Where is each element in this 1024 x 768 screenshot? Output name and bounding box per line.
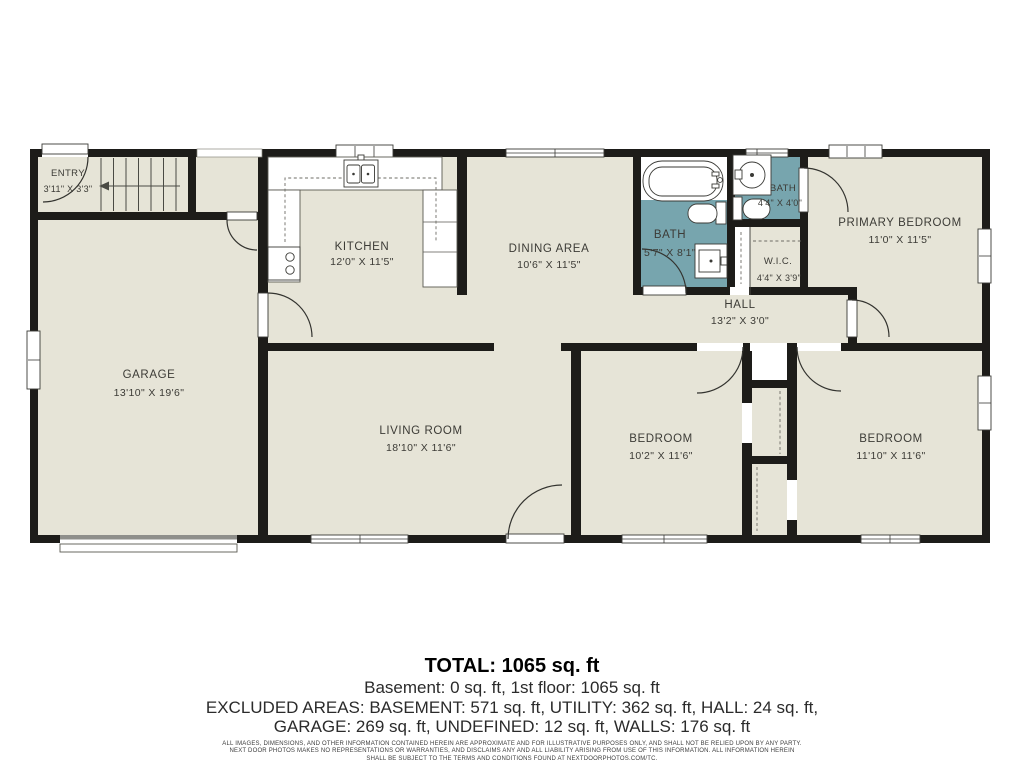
room-dims-bath-ensuite: 4'4" X 4'0" bbox=[758, 198, 802, 208]
room-dims-hall: 13'2" X 3'0" bbox=[711, 315, 769, 327]
room-dims-dining: 10'6" X 11'5" bbox=[517, 259, 581, 271]
floors-area-line: Basement: 0 sq. ft, 1st floor: 1065 sq. … bbox=[0, 678, 1024, 698]
room-label-bath-main: BATH bbox=[654, 229, 686, 241]
room-label-living: LIVING ROOM bbox=[379, 425, 462, 437]
room-dims-bath-main: 5'7" X 8'1" bbox=[644, 247, 696, 259]
room-label-bedroom-right: BEDROOM bbox=[859, 433, 923, 445]
room-dims-entry: 3'11" X 3'3" bbox=[44, 184, 93, 194]
disclaimer: ALL IMAGES, DIMENSIONS, AND OTHER INFORM… bbox=[0, 741, 1024, 764]
hall-vestibule-opening bbox=[750, 343, 787, 351]
disclaimer-line-2: NEXT DOOR PHOTOS MAKES NO REPRESENTATION… bbox=[0, 748, 1024, 756]
ensuite-faucet bbox=[735, 170, 742, 179]
room-label-bedroom-left: BEDROOM bbox=[629, 433, 693, 445]
bedroom-left-door-gap bbox=[697, 343, 743, 351]
closet-vestibule-floor bbox=[752, 351, 787, 381]
ensuite-toilet-tank bbox=[733, 197, 742, 220]
room-dims-living: 18'10" X 11'6" bbox=[386, 442, 456, 454]
garage-kitchen-door-leaf bbox=[258, 293, 268, 337]
closet-right-door-gap bbox=[787, 480, 797, 520]
room-label-entry: ENTRY bbox=[51, 168, 85, 179]
room-dims-bedroom-right: 11'10" X 11'6" bbox=[856, 450, 925, 462]
room-label-bath-ensuite: BATH bbox=[770, 183, 796, 194]
tub-faucet bbox=[718, 178, 723, 183]
room-label-garage: GARAGE bbox=[123, 369, 176, 381]
excluded-areas-line-2: GARAGE: 269 sq. ft, UNDEFINED: 12 sq. ft… bbox=[0, 717, 1024, 737]
toilet-tank bbox=[716, 202, 726, 224]
floor-plan-drawing: ENTRY 3'11" X 3'3" KITCHEN 12'0" X 11'5"… bbox=[0, 0, 1024, 620]
toilet bbox=[688, 204, 717, 223]
area-summary: TOTAL: 1065 sq. ft Basement: 0 sq. ft, 1… bbox=[0, 654, 1024, 763]
disclaimer-line-3: SHALL BE SUBJECT TO THE TERMS AND CONDIT… bbox=[0, 756, 1024, 764]
primary-door-leaf bbox=[847, 300, 857, 337]
excluded-areas-line-1: EXCLUDED AREAS: BASEMENT: 571 sq. ft, UT… bbox=[0, 698, 1024, 718]
bath-main-door-leaf bbox=[643, 286, 686, 295]
room-dims-kitchen: 12'0" X 11'5" bbox=[330, 256, 394, 268]
room-label-wic: W.I.C. bbox=[764, 256, 792, 267]
patio-door-leaf bbox=[506, 534, 564, 543]
room-dims-wic: 4'4" X 3'9" bbox=[757, 273, 801, 283]
closet-left-door-gap bbox=[742, 403, 752, 443]
room-label-kitchen: KITCHEN bbox=[335, 241, 390, 253]
room-dims-primary: 11'0" X 11'5" bbox=[869, 234, 932, 246]
entry-door-leaf bbox=[42, 144, 88, 154]
total-area-line: TOTAL: 1065 sq. ft bbox=[0, 654, 1024, 678]
garage-entry-door-leaf bbox=[227, 212, 257, 220]
garage-door bbox=[60, 535, 237, 552]
room-label-primary: PRIMARY BEDROOM bbox=[838, 217, 962, 229]
wic-opening bbox=[730, 287, 749, 295]
primary-window-top bbox=[829, 145, 882, 158]
room-label-dining: DINING AREA bbox=[509, 243, 590, 255]
window bbox=[197, 149, 262, 157]
room-label-hall: HALL bbox=[724, 299, 755, 311]
room-dims-bedroom-left: 10'2" X 11'6" bbox=[629, 450, 693, 462]
wic-shelf-strip bbox=[735, 227, 750, 295]
room-dims-garage: 13'10" X 19'6" bbox=[114, 387, 185, 399]
bedroom-right-door-gap bbox=[797, 343, 841, 351]
stove bbox=[268, 247, 300, 280]
kitchen-window bbox=[336, 145, 393, 158]
disclaimer-line-1: ALL IMAGES, DIMENSIONS, AND OTHER INFORM… bbox=[0, 741, 1024, 749]
floor-plan-page: ENTRY 3'11" X 3'3" KITCHEN 12'0" X 11'5"… bbox=[0, 0, 1024, 768]
